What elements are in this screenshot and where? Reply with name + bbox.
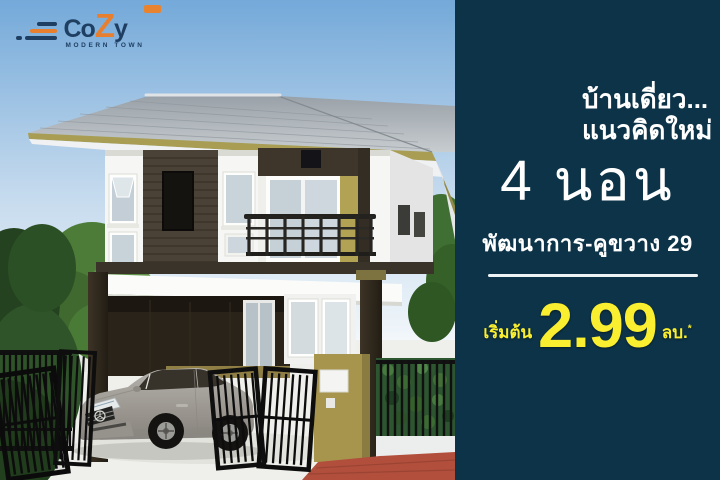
wall-lamp bbox=[301, 150, 321, 168]
side-wall-right bbox=[390, 150, 433, 270]
entrance-door bbox=[243, 300, 275, 370]
headline-line2: แนวคิดใหม่ bbox=[582, 115, 712, 146]
price-unit: ลบ.* bbox=[662, 319, 692, 346]
info-panel: บ้านเดี่ยว... แนวคิดใหม่ 4 นอน พัฒนาการ-… bbox=[455, 0, 720, 480]
brand-y: y bbox=[114, 19, 127, 40]
brand-z: Z bbox=[95, 12, 114, 40]
headline-line1: บ้านเดี่ยว... bbox=[582, 84, 712, 115]
price-asterisk: * bbox=[688, 324, 692, 335]
balcony bbox=[244, 148, 376, 270]
mailbox bbox=[320, 370, 348, 392]
hedge-fence bbox=[376, 360, 455, 436]
brand-co: Co bbox=[64, 19, 95, 40]
price-block: เริ่มต้น 2.99 ลบ.* bbox=[455, 299, 720, 354]
slat-window bbox=[163, 172, 193, 230]
brand-name: CoZy bbox=[64, 12, 145, 40]
logo-bars-icon bbox=[16, 22, 57, 41]
second-floor bbox=[96, 148, 434, 274]
left-windows bbox=[107, 174, 139, 266]
advertisement: CoZy MODERN TOWN บ้านเดี่ยว... แนวคิดใหม… bbox=[0, 0, 720, 480]
logo-new-tag-icon bbox=[144, 5, 161, 13]
location-text: พัฒนาการ-คูขวาง 29 bbox=[455, 226, 720, 261]
house-photo bbox=[0, 0, 455, 480]
ground-floor-windows bbox=[284, 294, 356, 364]
mailbox-wall bbox=[314, 354, 370, 462]
divider-line bbox=[488, 274, 698, 277]
price-prefix: เริ่มต้น bbox=[483, 319, 532, 346]
headline: บ้านเดี่ยว... แนวคิดใหม่ bbox=[582, 84, 712, 146]
bedrooms-text: 4 นอน bbox=[455, 152, 720, 212]
house-illustration bbox=[0, 0, 455, 480]
price-value: 2.99 bbox=[538, 299, 657, 354]
car-front-wheel bbox=[148, 413, 184, 449]
cozy-logo: CoZy MODERN TOWN bbox=[16, 12, 145, 49]
